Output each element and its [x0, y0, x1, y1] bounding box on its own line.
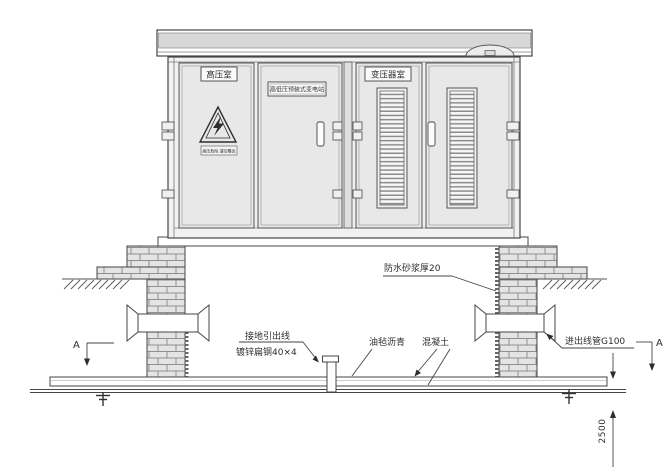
plate-nameplate: 高低压预装式变电站 [268, 82, 326, 96]
drawing-canvas: 高压室 高低压预装式变电站 变压器室 高压危险 请勿靠近 [0, 0, 670, 469]
high-voltage-room-label: 高压室 [206, 70, 232, 81]
louver-vent-left [377, 88, 407, 208]
waterproof-mortar-label: 防水砂浆厚20 [384, 262, 441, 274]
dimension-2500: 2500 [598, 419, 608, 444]
substation-elevation-diagram: 高压室 高低压预装式变电站 变压器室 高压危险 请勿靠近 [0, 0, 670, 469]
ground-lead-label-line1: 接地引出线 [245, 330, 290, 342]
section-marker-a-left: A [73, 340, 80, 351]
section-marker-a-right: A [656, 338, 663, 349]
asphalt-felt-label: 油毡沥青 [369, 336, 405, 348]
warning-sign-text: 高压危险 请勿靠近 [202, 148, 235, 154]
center-mullion [344, 62, 352, 228]
nameplate-label: 高低压预装式变电站 [270, 86, 324, 94]
transformer-room-label: 变压器室 [371, 70, 406, 81]
plate-transformer-room: 变压器室 [365, 67, 411, 81]
conduit-label: 进出线管G100 [565, 335, 625, 347]
plate-high-voltage-room: 高压室 [201, 67, 237, 81]
concrete-label: 混凝土 [422, 336, 449, 348]
door-high-voltage [179, 63, 254, 228]
louver-vent-right [447, 88, 477, 208]
ground-lead-label-line2: 镀锌扁钢40×4 [236, 346, 297, 358]
